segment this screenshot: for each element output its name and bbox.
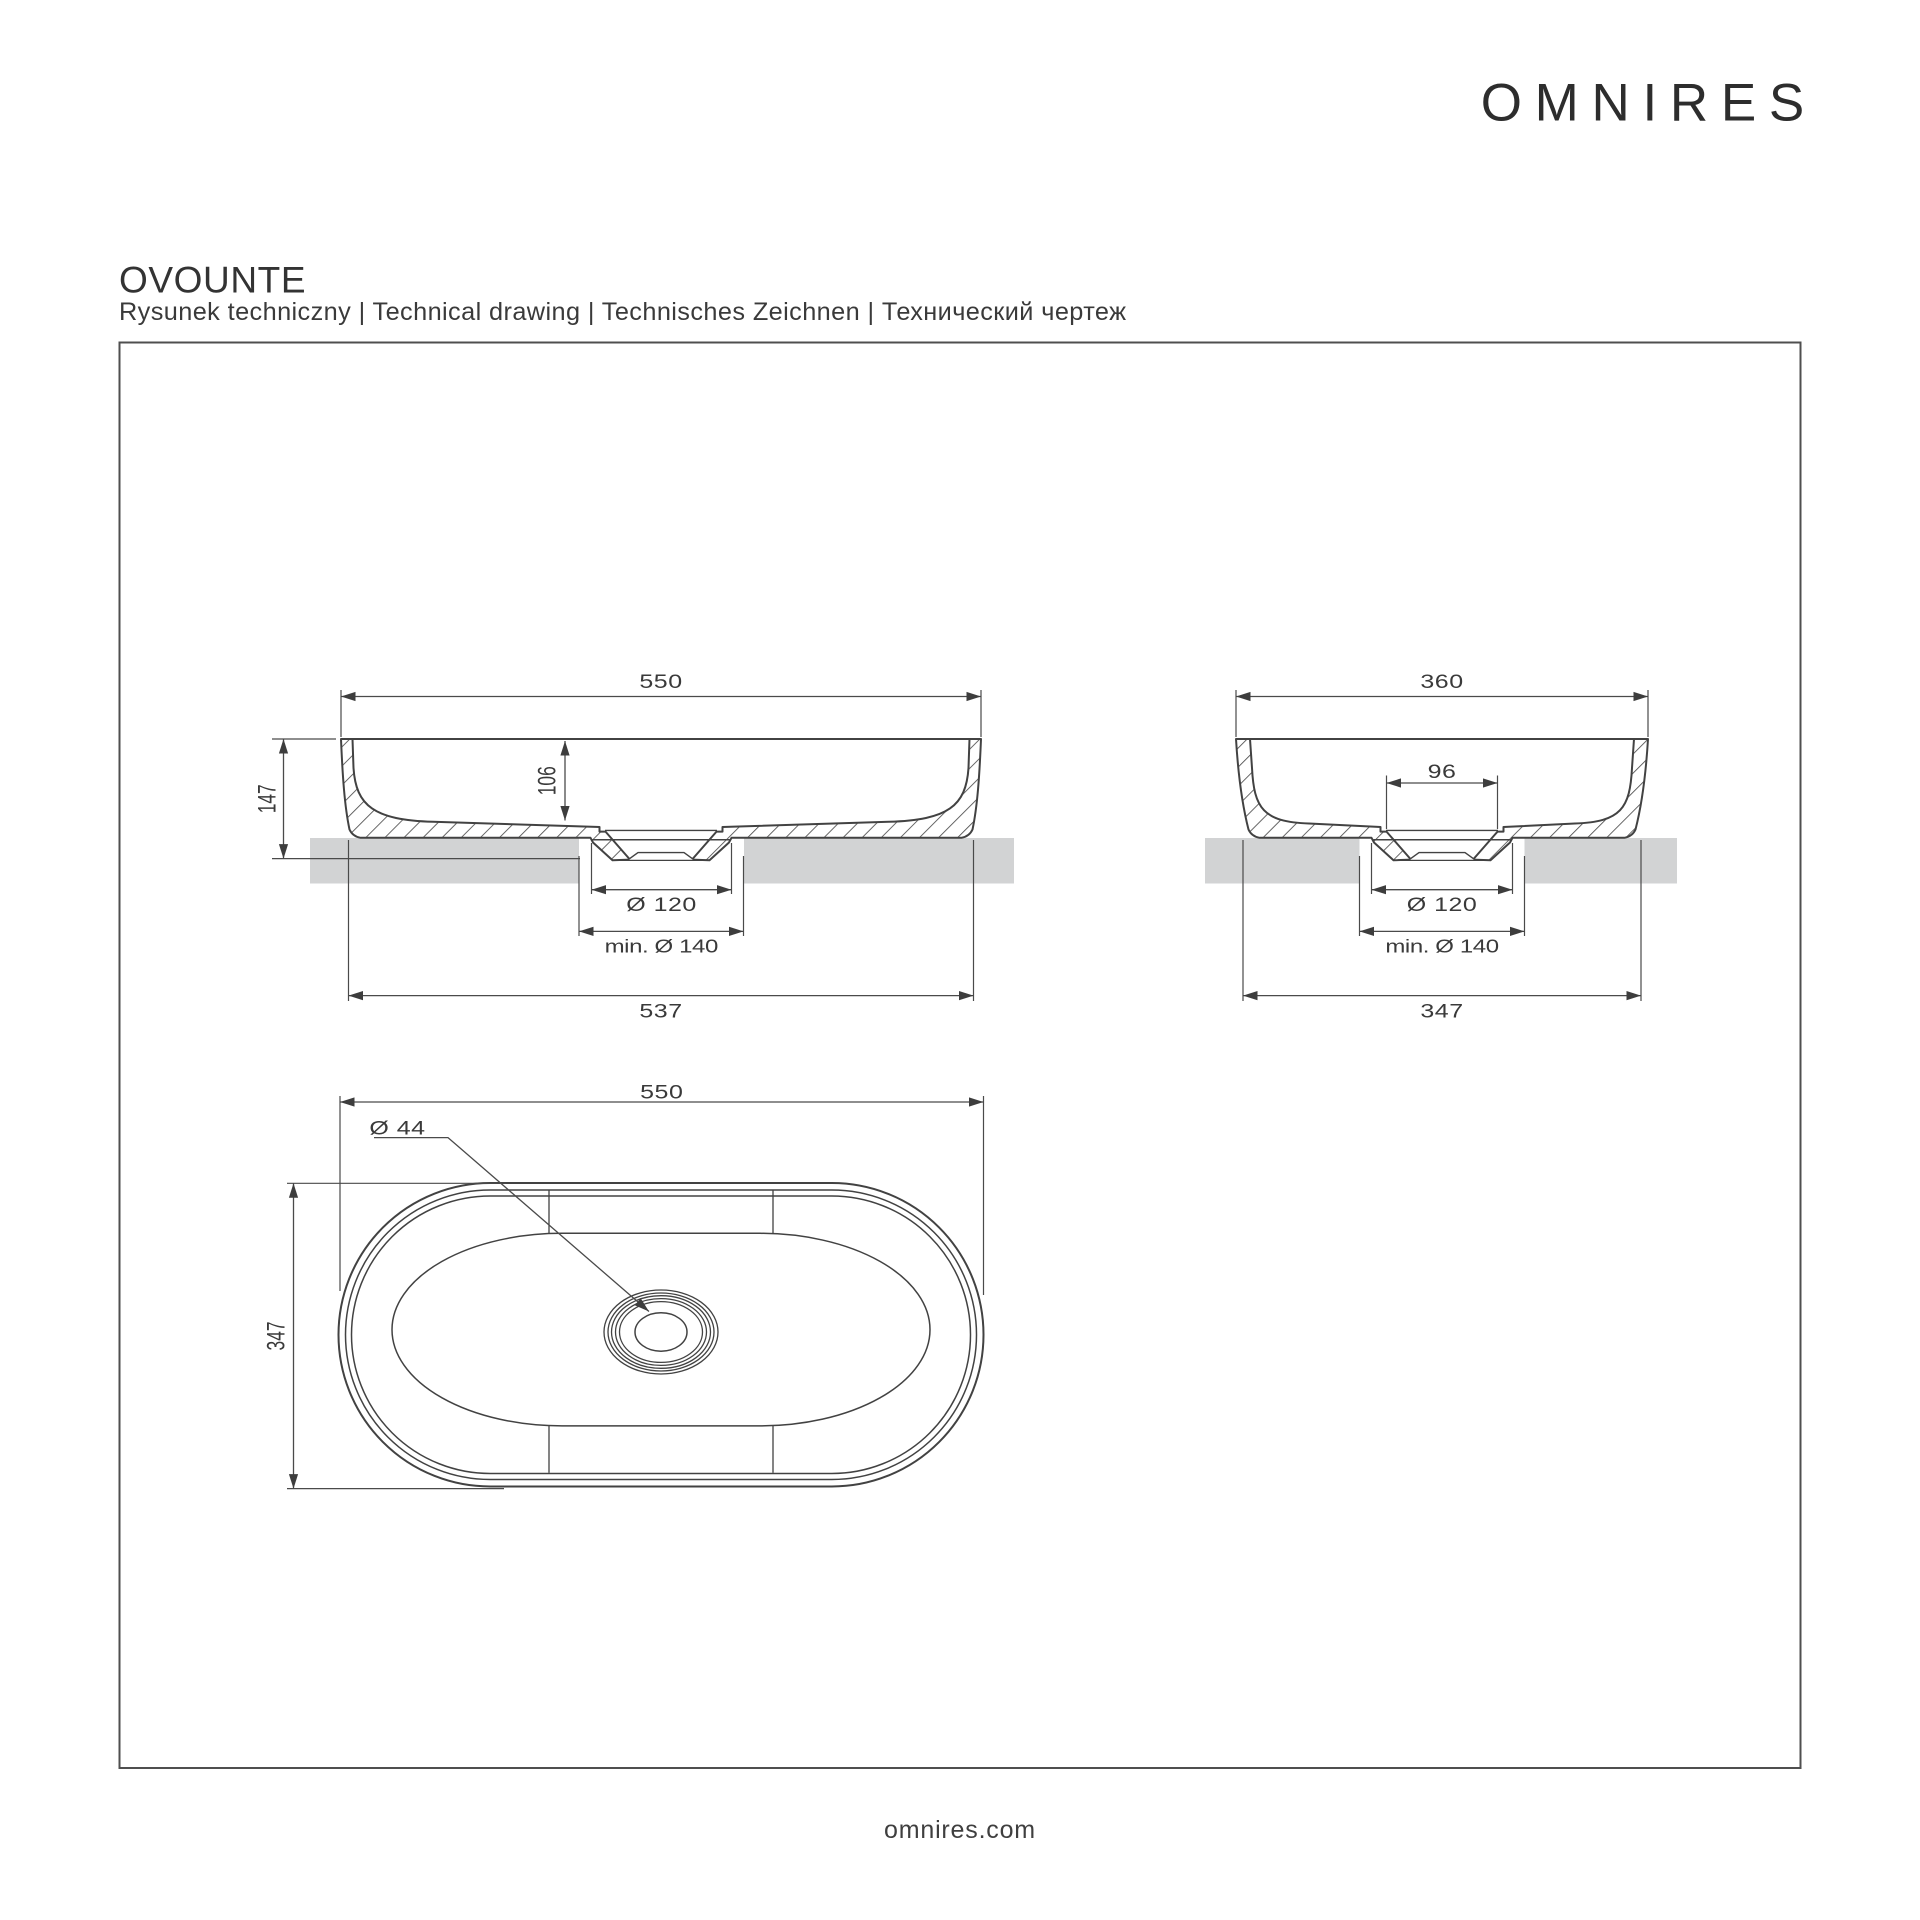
svg-text:550: 550 [640, 1081, 683, 1103]
svg-text:Ø 120: Ø 120 [1407, 894, 1478, 916]
svg-text:OMNIRES: OMNIRES [1481, 74, 1817, 133]
svg-text:omnires.com: omnires.com [884, 1816, 1036, 1844]
svg-text:OVOUNTE: OVOUNTE [119, 260, 306, 301]
svg-text:Ø 120: Ø 120 [626, 894, 697, 916]
svg-text:147: 147 [254, 784, 282, 813]
svg-text:min. Ø 140: min. Ø 140 [605, 936, 719, 957]
svg-text:min. Ø 140: min. Ø 140 [1385, 936, 1499, 957]
svg-text:550: 550 [639, 671, 682, 693]
svg-text:347: 347 [1420, 1000, 1463, 1022]
svg-text:Ø 44: Ø 44 [369, 1117, 425, 1139]
svg-text:106: 106 [534, 766, 562, 795]
svg-text:347: 347 [263, 1321, 291, 1350]
svg-text:360: 360 [1420, 671, 1463, 693]
svg-text:96: 96 [1428, 761, 1457, 783]
svg-text:Rysunek techniczny | Technical: Rysunek techniczny | Technical drawing |… [119, 298, 1126, 326]
svg-text:537: 537 [639, 1000, 682, 1022]
